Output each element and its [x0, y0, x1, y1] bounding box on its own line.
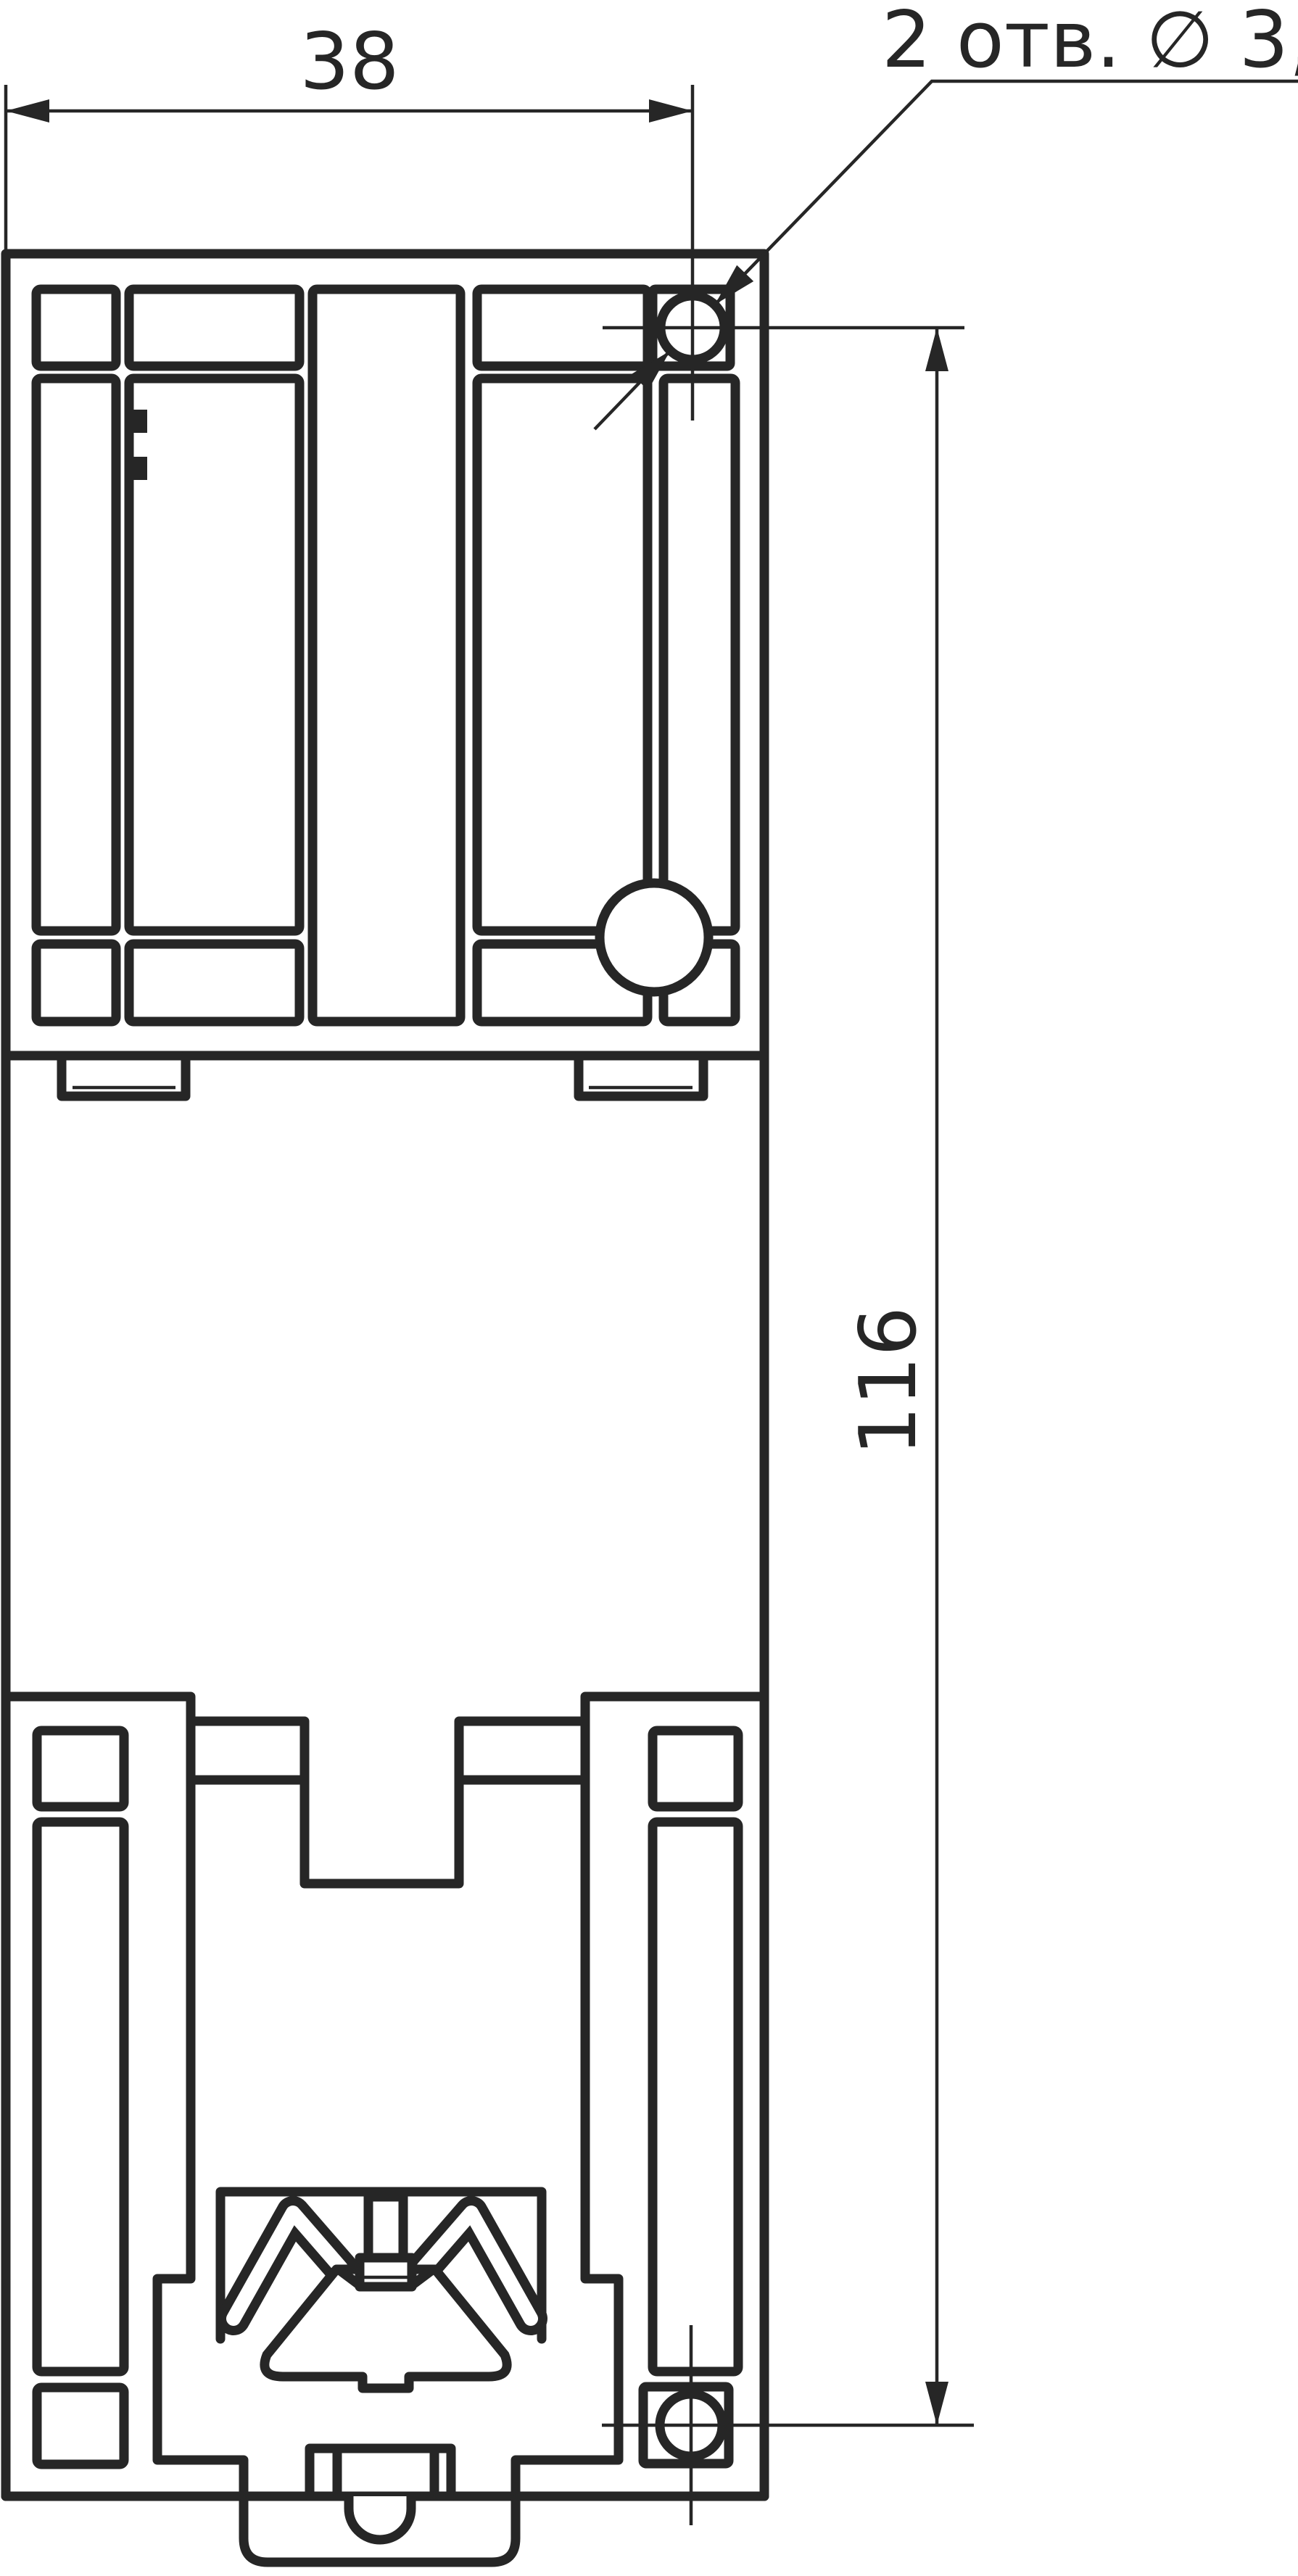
terminal-cell [36, 289, 116, 366]
wall-slot [653, 1822, 738, 2372]
bottom-right-wall [516, 1697, 764, 2496]
section-divider [6, 1056, 764, 1096]
round-cutout [600, 883, 708, 992]
terminal-cell [129, 378, 299, 931]
arrowhead-bottom-icon [925, 2382, 948, 2425]
dimension-width-value: 38 [299, 17, 399, 107]
technical-drawing-canvas: 38 116 2 отв. ∅ 3,5 [0, 0, 1298, 2576]
terminal-cell [129, 289, 299, 366]
terminal-cell [129, 944, 299, 1022]
holes-note-label: 2 отв. ∅ 3,5 [882, 0, 1298, 86]
terminal-cell [664, 378, 735, 931]
central-channel [313, 289, 460, 1022]
wall-slot [653, 1731, 738, 1807]
center-recess [191, 1721, 585, 1884]
indicator-tab [133, 410, 147, 433]
leader-line [715, 81, 1298, 305]
dimension-height-value: 116 [843, 1306, 934, 1456]
terminal-cell [36, 944, 116, 1022]
wall-slot [37, 2387, 124, 2464]
indicator-tab [133, 457, 147, 480]
divider-notch-right [579, 1056, 703, 1096]
din-rail-clip [220, 2192, 542, 2540]
clip-plunger-collar [360, 2258, 412, 2287]
terminal-cell [36, 378, 116, 931]
drawing-page: 38 116 2 отв. ∅ 3,5 [0, 0, 1298, 2576]
terminal-grid [36, 289, 735, 1022]
wall-slot [37, 1731, 124, 1807]
arrowhead-top-icon [925, 328, 948, 371]
clip-plunger-stem [368, 2197, 403, 2258]
terminal-cell [477, 378, 648, 931]
arrowhead-right-icon [649, 99, 693, 123]
dimension-width-38: 38 [6, 17, 693, 254]
wall-slot [37, 1822, 124, 2372]
arrowhead-left-icon [6, 99, 49, 123]
divider-notch-left [62, 1056, 186, 1096]
dimension-height-116: 116 [843, 328, 948, 2425]
clip-pull-tab [349, 2496, 411, 2540]
